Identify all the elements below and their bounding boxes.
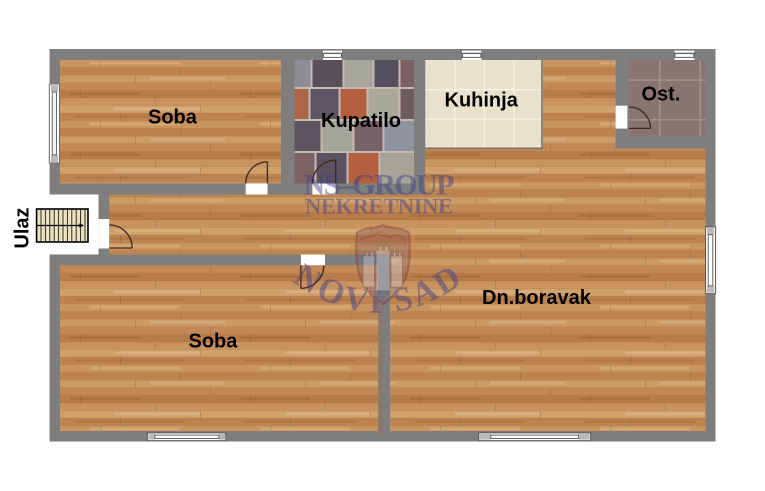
svg-text:Ulaz: Ulaz [12, 207, 34, 248]
svg-text:NEKRETNINE: NEKRETNINE [305, 194, 453, 219]
svg-text:Soba: Soba [148, 107, 198, 129]
svg-text:Kuhinja: Kuhinja [445, 90, 519, 112]
svg-text:Ost.: Ost. [642, 84, 681, 106]
svg-text:Soba: Soba [189, 331, 239, 353]
svg-text:Dn.boravak: Dn.boravak [482, 287, 592, 309]
svg-text:Kupatilo: Kupatilo [321, 110, 401, 132]
